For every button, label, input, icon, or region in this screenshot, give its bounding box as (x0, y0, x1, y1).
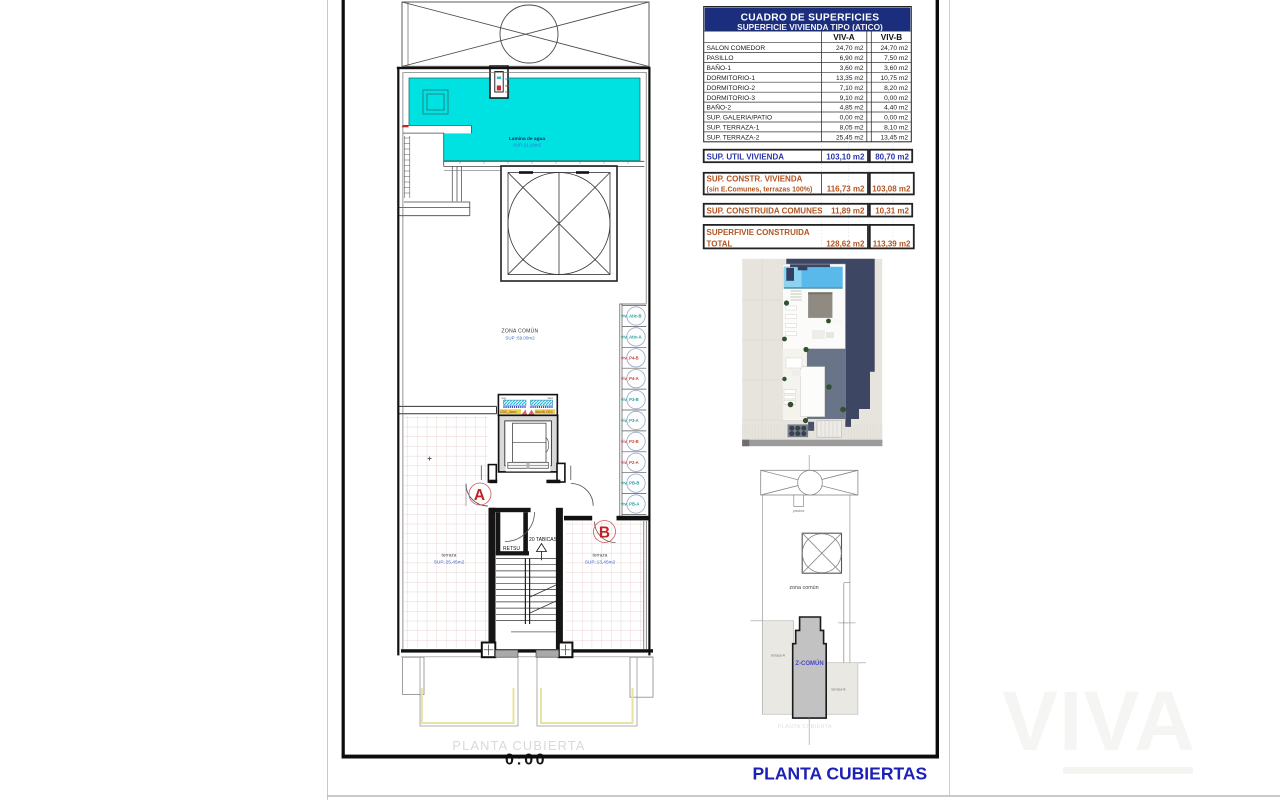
svg-text:13,35 m2: 13,35 m2 (836, 75, 864, 82)
svg-text:TOTAL: TOTAL (707, 240, 733, 249)
svg-text:piscina: piscina (793, 509, 804, 513)
svg-text:SUP. CONSTR. VIVIENDA: SUP. CONSTR. VIVIENDA (707, 175, 803, 184)
svg-text:SUP.:21,16m2: SUP.:21,16m2 (513, 143, 542, 148)
svg-text:reg: reg (502, 396, 506, 400)
svg-text:6,90 m2: 6,90 m2 (840, 55, 864, 62)
svg-text:Z-COMÚN: Z-COMÚN (795, 660, 823, 667)
svg-text:0,00 m2: 0,00 m2 (884, 95, 908, 102)
svg-text:viv_P2-B: viv_P2-B (621, 439, 639, 444)
svg-text:SUPERFIVIE CONSTRUIDA: SUPERFIVIE CONSTRUIDA (707, 228, 810, 237)
svg-text:0:00: 0:00 (505, 752, 547, 769)
svg-text:20 TABICAS: 20 TABICAS (529, 537, 558, 543)
svg-text:A: A (474, 487, 485, 504)
svg-text:terraza: terraza (442, 553, 457, 559)
svg-text:CBC_danv: CBC_danv (500, 410, 517, 414)
svg-text:viv_P4-B: viv_P4-B (621, 355, 639, 360)
svg-text:3,60 m2: 3,60 m2 (884, 65, 908, 72)
svg-text:80,70 m2: 80,70 m2 (875, 152, 909, 161)
svg-text:10,75 m2: 10,75 m2 (881, 75, 909, 82)
svg-text:SUP. TERRAZA-1: SUP. TERRAZA-1 (707, 125, 760, 132)
svg-text:viv_P2-A: viv_P2-A (621, 460, 639, 465)
svg-text:danvB CBC: danvB CBC (535, 410, 553, 414)
svg-text:terraza: terraza (593, 553, 608, 559)
svg-text:11,89 m2: 11,89 m2 (831, 207, 865, 216)
svg-text:Lamina de agua: Lamina de agua (509, 136, 546, 142)
svg-text:imp: imp (505, 90, 510, 94)
svg-text:SUPERFICIE VIVIENDA TIPO (ATI: SUPERFICIE VIVIENDA TIPO (ATICO) (737, 22, 883, 32)
svg-text:instalaciones: instalaciones (838, 621, 856, 625)
svg-text:103,08 m2: 103,08 m2 (872, 184, 911, 193)
svg-text:viv_Atic-B: viv_Atic-B (621, 314, 641, 319)
svg-text:103,10 m2: 103,10 m2 (826, 152, 865, 161)
svg-text:10,31 m2: 10,31 m2 (875, 207, 909, 216)
svg-text:terraza-B: terraza-B (832, 688, 847, 692)
svg-text:VIVA: VIVA (1002, 674, 1196, 768)
svg-text:spt: spt (505, 77, 509, 81)
svg-text:7,50 m2: 7,50 m2 (884, 55, 908, 62)
svg-text:0,00 m2: 0,00 m2 (840, 115, 864, 122)
svg-text:VIV-B: VIV-B (881, 33, 902, 42)
svg-text:DORMITORIO-1: DORMITORIO-1 (707, 75, 756, 82)
svg-text:SALON COMEDOR: SALON COMEDOR (707, 45, 766, 52)
svg-text:SUP. GALERIA/PATIO: SUP. GALERIA/PATIO (707, 115, 773, 122)
svg-text:7,10 m2: 7,10 m2 (840, 85, 864, 92)
svg-text:SUP.:13,45m2: SUP.:13,45m2 (585, 560, 616, 566)
svg-text:SUP.:25,45m2: SUP.:25,45m2 (434, 560, 465, 566)
svg-text:VIV-A: VIV-A (833, 33, 854, 42)
svg-text:DORMITORIO-2: DORMITORIO-2 (707, 85, 756, 92)
svg-text:SUP. TERRAZA-2: SUP. TERRAZA-2 (707, 135, 760, 142)
svg-text:viv_PB-A: viv_PB-A (621, 502, 639, 507)
svg-text:B: B (599, 525, 610, 542)
svg-text:116,73 m2: 116,73 m2 (827, 184, 865, 193)
svg-text:BAÑO-1: BAÑO-1 (707, 63, 732, 72)
svg-text:SUP. UTIL VIVIENDA: SUP. UTIL VIVIENDA (707, 152, 785, 161)
svg-text:113,39 m2: 113,39 m2 (873, 240, 911, 249)
svg-text:viv_Atic-A: viv_Atic-A (621, 334, 641, 339)
svg-text:DORMITORIO-3: DORMITORIO-3 (707, 95, 756, 102)
svg-text:(sin E.Comunes, terrazas 100%): (sin E.Comunes, terrazas 100%) (707, 186, 813, 193)
svg-text:8,20 m2: 8,20 m2 (884, 85, 908, 92)
svg-text:4,40 m2: 4,40 m2 (884, 105, 908, 112)
svg-text:8,05 m2: 8,05 m2 (840, 125, 864, 132)
svg-text:RETSU: RETSU (503, 546, 520, 552)
svg-text:viv_P3-A: viv_P3-A (621, 418, 639, 423)
svg-text:zona común: zona común (789, 585, 818, 591)
svg-text:3,60 m2: 3,60 m2 (840, 65, 864, 72)
svg-text:BAÑO-2: BAÑO-2 (707, 103, 732, 112)
svg-text:4,85 m2: 4,85 m2 (840, 105, 864, 112)
svg-text:SUP. CONSTRUIDA COMUNES: SUP. CONSTRUIDA COMUNES (707, 207, 824, 216)
svg-text:PASILLO: PASILLO (707, 55, 734, 62)
svg-text:13,45 m2: 13,45 m2 (881, 135, 909, 142)
svg-text:ret: ret (505, 84, 509, 88)
svg-text:0,00 m2: 0,00 m2 (884, 115, 908, 122)
svg-text:SUP :59.00m2: SUP :59.00m2 (505, 336, 535, 341)
svg-text:24,70 m2: 24,70 m2 (881, 45, 909, 52)
svg-text:viv_P3-B: viv_P3-B (621, 397, 639, 402)
svg-text:viv_PB-B: viv_PB-B (621, 481, 639, 486)
svg-text:vent: vent (548, 396, 554, 400)
svg-text:128,62 m2: 128,62 m2 (826, 240, 865, 249)
svg-text:24,70 m2: 24,70 m2 (836, 45, 864, 52)
svg-text:ZONA COMÚN: ZONA COMÚN (502, 328, 539, 335)
svg-text:25,45 m2: 25,45 m2 (836, 135, 864, 142)
svg-text:viv_P4-A: viv_P4-A (621, 376, 639, 381)
svg-text:9,10 m2: 9,10 m2 (840, 95, 864, 102)
svg-text:8,10 m2: 8,10 m2 (884, 125, 908, 132)
svg-text:terraza-A: terraza-A (771, 654, 786, 658)
svg-text:PLANTA CUBIERTAS: PLANTA CUBIERTAS (753, 764, 928, 784)
svg-text:PLANTA CUBIERTA: PLANTA CUBIERTA (778, 724, 832, 730)
